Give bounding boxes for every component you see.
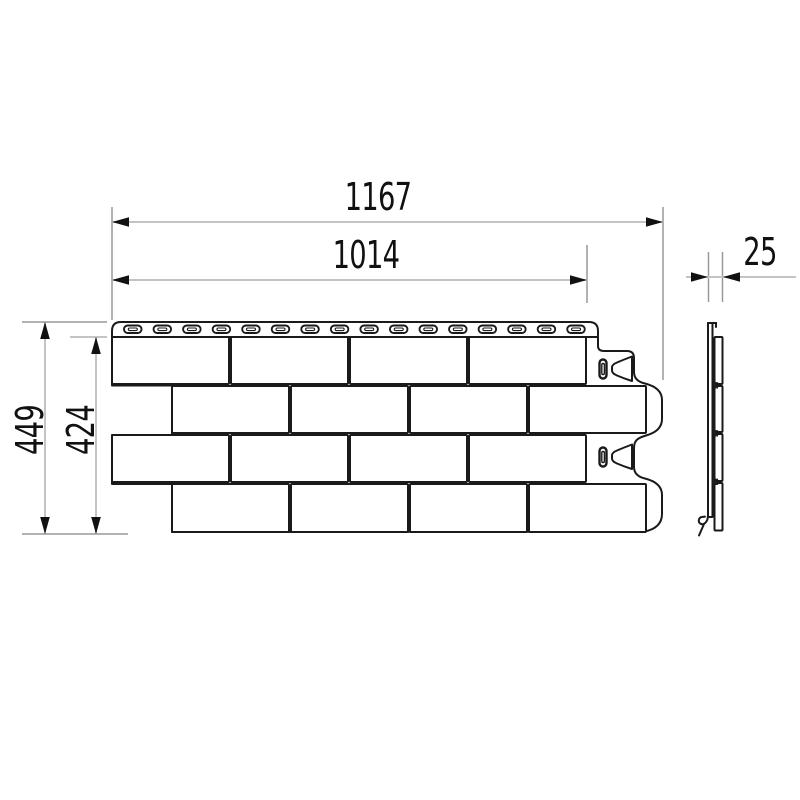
brick — [529, 484, 646, 532]
arrow-left-icon — [112, 217, 129, 227]
facade-panel-drawing — [0, 0, 800, 800]
nail-slot-icon — [301, 326, 319, 334]
arrow-down-icon — [40, 517, 50, 534]
nail-slot-icon — [567, 326, 585, 334]
nail-slot-icon — [508, 326, 526, 334]
arrow-right-icon — [570, 275, 587, 285]
nail-slot-icon — [154, 326, 172, 334]
side-bottom-tail — [699, 524, 704, 536]
side-front-profile — [714, 337, 722, 531]
arrow-right-icon — [646, 217, 663, 227]
brick — [350, 435, 467, 482]
brick — [291, 484, 408, 532]
side-row-segment — [715, 483, 723, 531]
brick — [172, 484, 289, 532]
nail-slot-icon — [183, 326, 201, 334]
technical-drawing-canvas: 1167 1014 25 449 424 — [0, 0, 800, 800]
nail-slot-icon — [124, 326, 142, 334]
brick — [231, 337, 348, 384]
nail-slot-icon — [479, 326, 497, 334]
nail-slot-icon — [331, 326, 349, 334]
nail-slot-icon — [538, 326, 556, 334]
side-row-segment — [715, 434, 723, 481]
brick — [291, 386, 408, 433]
arrow-down-icon — [91, 517, 101, 534]
side-row-segment — [715, 337, 723, 384]
brick — [112, 435, 229, 482]
side-row-segment — [715, 386, 723, 432]
brick — [410, 484, 527, 532]
dim-label-overall-height: 449 — [8, 405, 52, 455]
brick — [410, 386, 527, 433]
dim-label-useful-height: 424 — [59, 405, 103, 455]
dim-label-overall-width: 1167 — [345, 175, 412, 219]
arrow-right-icon — [691, 272, 708, 282]
lock-slot-icon — [600, 360, 607, 379]
brick — [112, 337, 229, 384]
side-back-sheet — [708, 323, 713, 517]
dim-thickness — [686, 252, 796, 302]
nail-slot-icon — [242, 326, 260, 334]
brick — [172, 386, 289, 433]
side-view — [699, 323, 723, 536]
brick — [231, 435, 348, 482]
nail-slot-icon — [420, 326, 438, 334]
side-bottom-hook — [699, 505, 708, 524]
dim-label-useful-width: 1014 — [333, 233, 400, 277]
brick — [350, 337, 467, 384]
brick — [529, 386, 646, 433]
arrow-up-icon — [40, 322, 50, 339]
nail-slot-icon — [272, 326, 290, 334]
brick — [469, 337, 586, 384]
nail-slot-icon — [449, 326, 467, 334]
dim-label-thickness: 25 — [743, 230, 776, 274]
arrow-up-icon — [91, 337, 101, 354]
nail-slot-icon — [360, 326, 378, 334]
brick-pattern — [112, 337, 646, 532]
brick — [469, 435, 586, 482]
nail-slot-icon — [213, 326, 231, 334]
arrow-left-icon — [723, 272, 740, 282]
front-view — [112, 322, 662, 532]
arrow-left-icon — [112, 275, 129, 285]
nail-slot-icon — [390, 326, 408, 334]
lock-slot-icon — [600, 448, 607, 467]
